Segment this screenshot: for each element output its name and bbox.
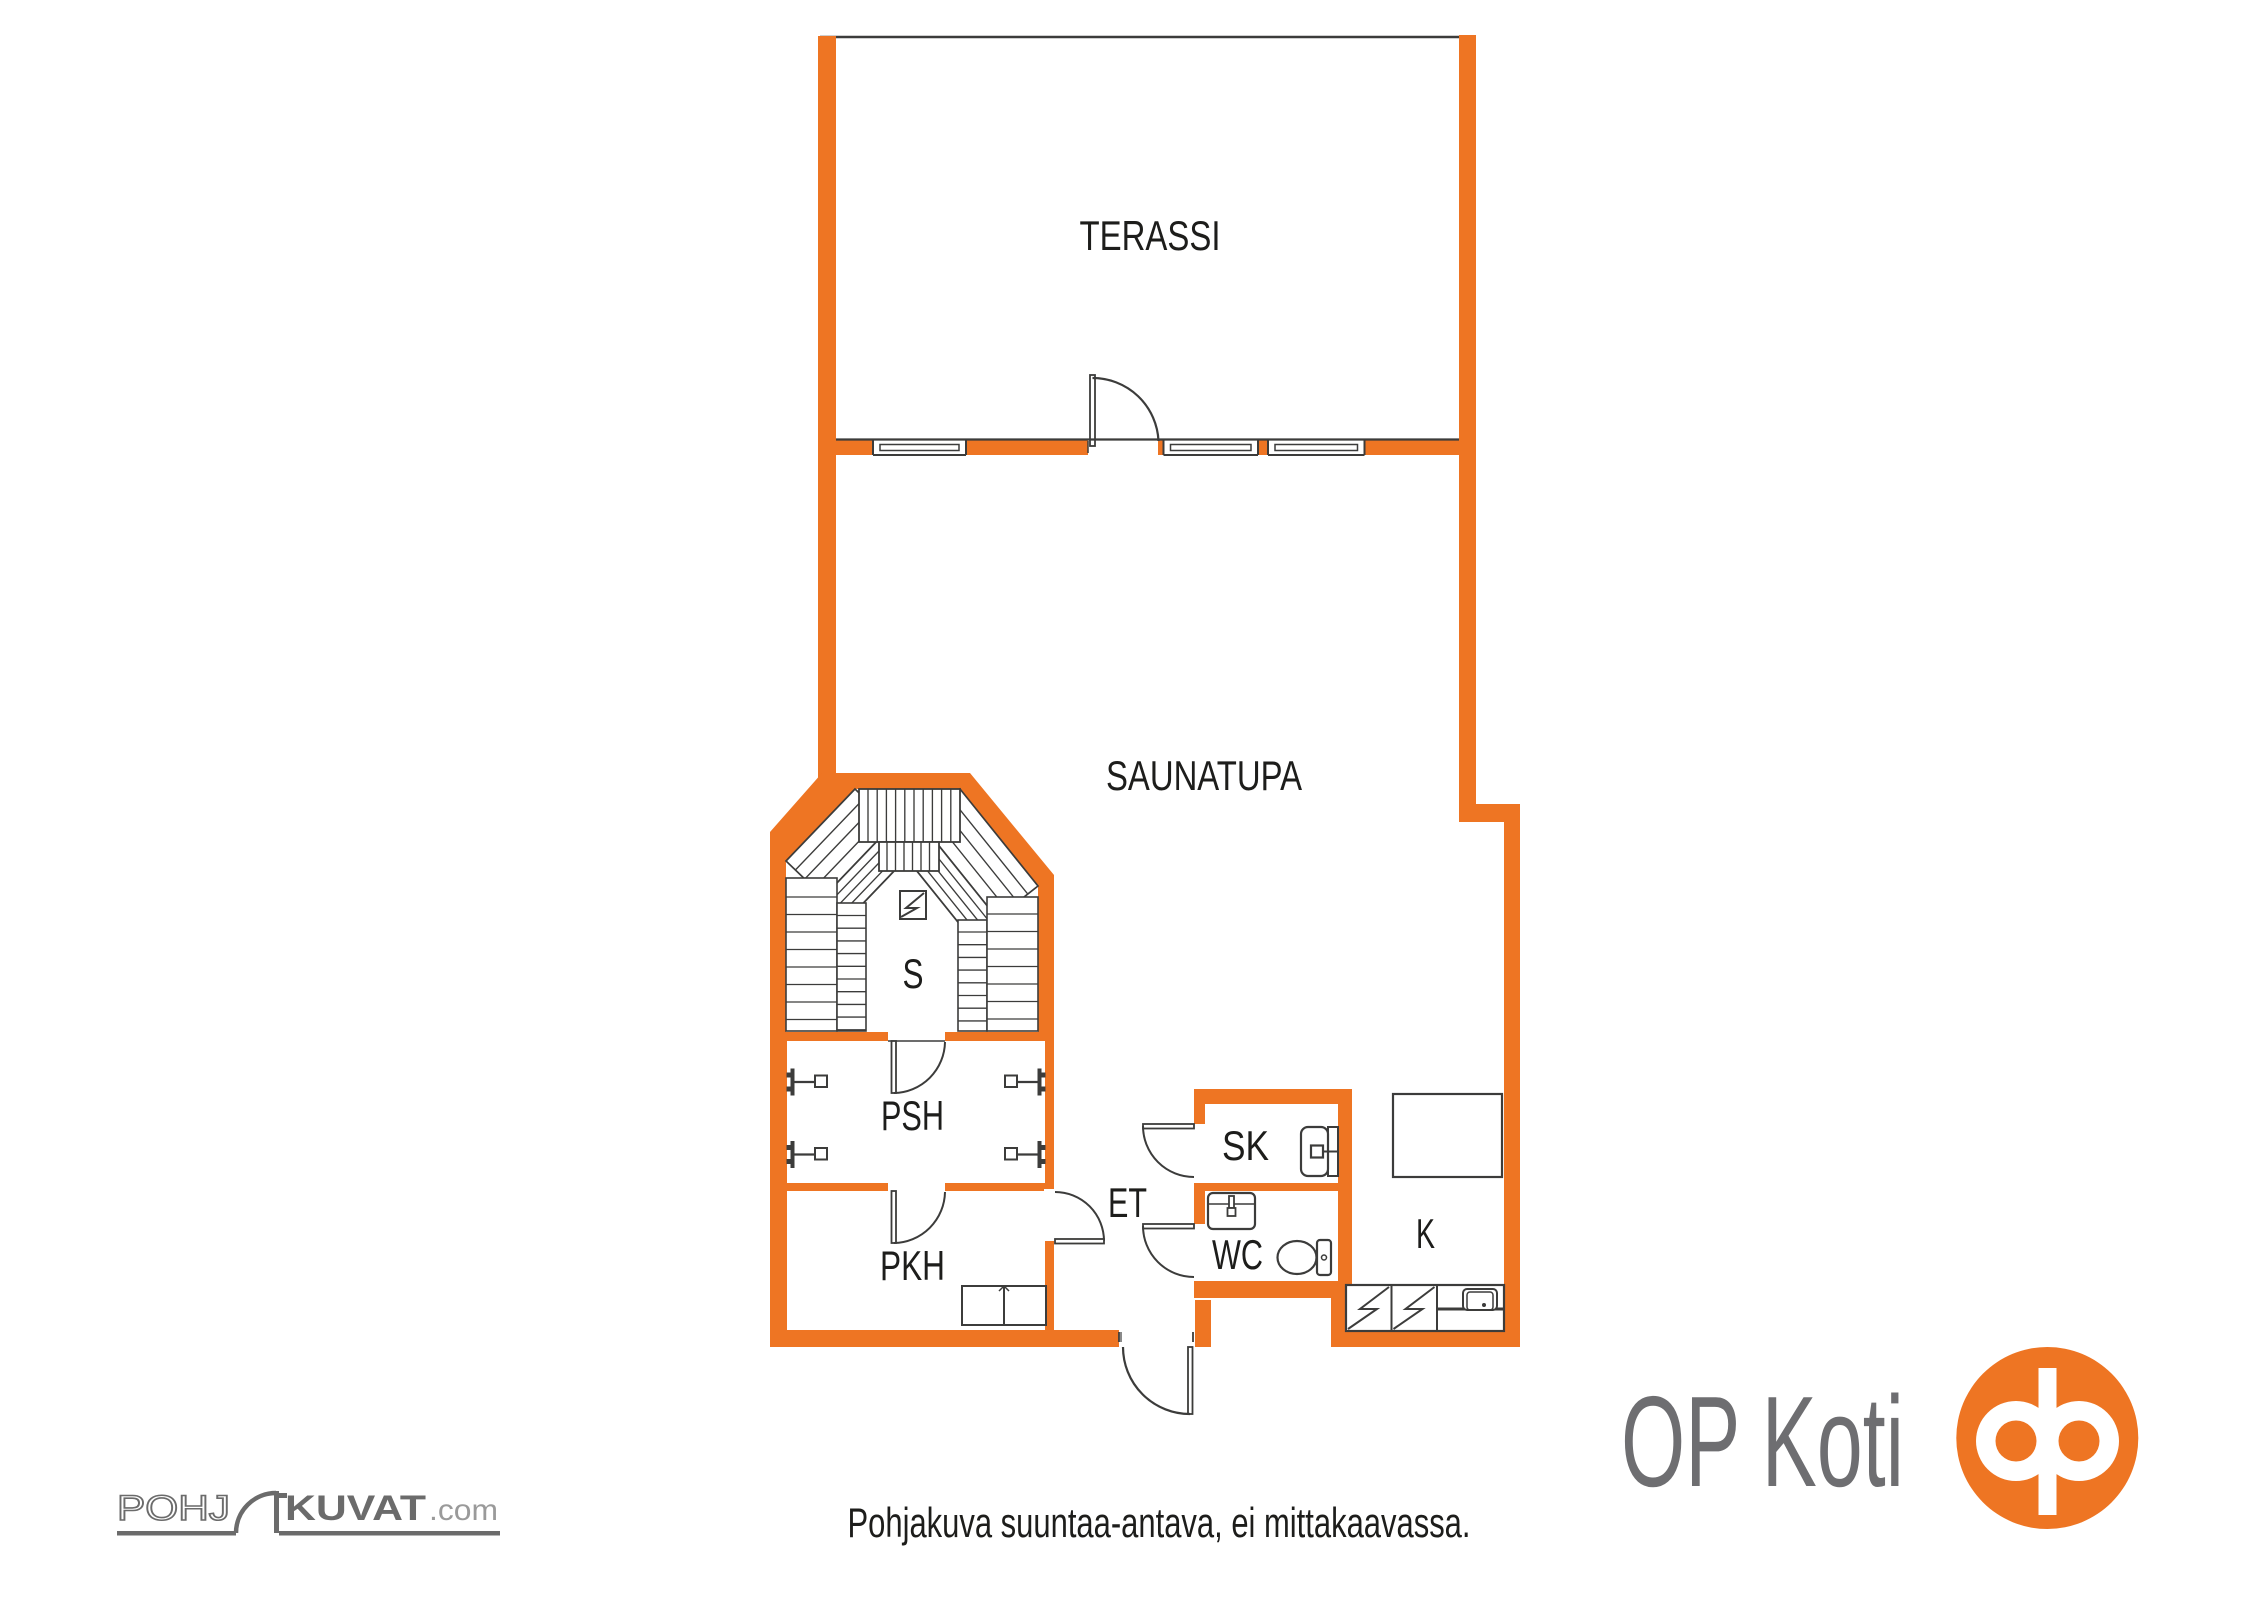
svg-text:ET: ET xyxy=(1108,1179,1147,1226)
svg-text:KUVAT: KUVAT xyxy=(285,1489,426,1528)
svg-text:POHJ: POHJ xyxy=(117,1489,230,1528)
svg-text:Pohjakuva suuntaa-antava, ei m: Pohjakuva suuntaa-antava, ei mittakaavas… xyxy=(848,1499,1471,1546)
svg-text:PKH: PKH xyxy=(880,1242,945,1289)
svg-text:.com: .com xyxy=(429,1494,498,1527)
svg-text:PSH: PSH xyxy=(881,1092,944,1139)
svg-text:WC: WC xyxy=(1212,1231,1263,1278)
svg-text:S: S xyxy=(903,950,924,997)
svg-text:TERASSI: TERASSI xyxy=(1080,212,1221,259)
svg-text:SK: SK xyxy=(1222,1122,1269,1169)
svg-text:OP Koti: OP Koti xyxy=(1621,1370,1904,1514)
svg-text:K: K xyxy=(1416,1210,1435,1257)
svg-text:SAUNATUPA: SAUNATUPA xyxy=(1106,752,1302,799)
